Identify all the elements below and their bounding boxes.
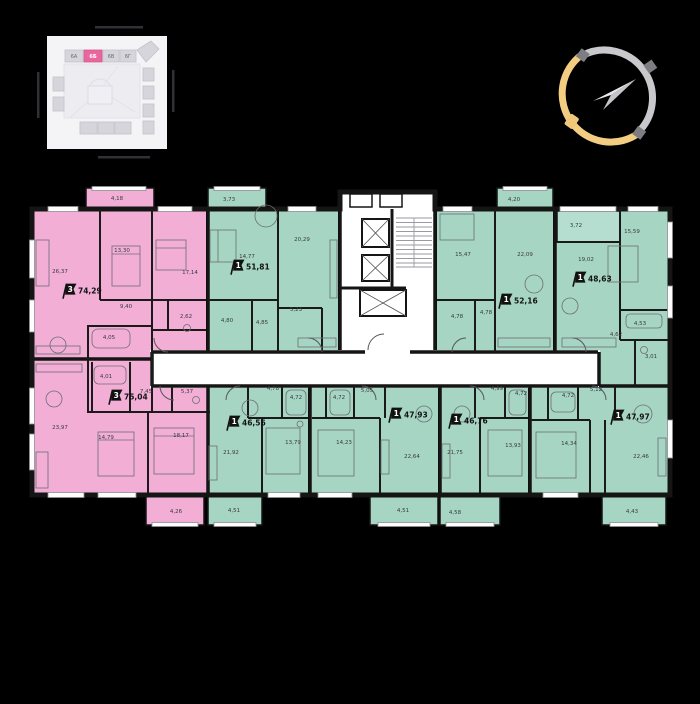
- apartment-total-area: 52,16: [514, 297, 538, 306]
- apartment-label-75-04[interactable]: 375,04: [108, 389, 148, 406]
- apartment-label-74-29[interactable]: 374,29: [62, 283, 102, 300]
- room-count-flag-icon: 1: [610, 409, 625, 426]
- street-label-placeholder: [172, 70, 175, 112]
- building-plan: [30, 187, 673, 527]
- room-count-flag-icon: 1: [572, 271, 587, 288]
- apartment-label-47-97[interactable]: 147,97: [610, 409, 650, 426]
- svg-text:3: 3: [114, 391, 119, 400]
- room-count-flag-icon: 3: [62, 283, 77, 300]
- apartment-label-47-93[interactable]: 147,93: [388, 407, 428, 424]
- apartment-total-area: 51,81: [246, 263, 270, 272]
- map-building[interactable]: [53, 77, 64, 91]
- vent-shaft: [380, 194, 402, 207]
- map-building[interactable]: [80, 122, 97, 134]
- apartment-region-47-93[interactable]: [310, 386, 438, 493]
- map-building[interactable]: [143, 86, 154, 99]
- map-building-label-highlighted: 6Б: [89, 54, 96, 60]
- apartment-region-51-81[interactable]: [208, 211, 338, 352]
- floorplan-page: 6А 6Б 6В 6Г: [0, 0, 700, 700]
- apartment-total-area: 74,29: [78, 287, 102, 296]
- apartment-total-area: 46,56: [242, 419, 266, 428]
- courtyard-building: [88, 86, 112, 104]
- street-label-placeholder: [37, 72, 40, 118]
- apartment-total-area: 47,97: [626, 413, 650, 422]
- map-building-label: 6В: [108, 54, 115, 60]
- apartment-total-area: 48,63: [588, 275, 612, 284]
- svg-text:1: 1: [394, 409, 399, 418]
- apartment-total-area: 46,76: [464, 417, 488, 426]
- room-count-flag-icon: 1: [388, 407, 403, 424]
- map-building[interactable]: [98, 122, 114, 134]
- apartment-label-51-81[interactable]: 151,81: [230, 259, 270, 276]
- apartment-label-52-16[interactable]: 152,16: [498, 293, 538, 310]
- map-building[interactable]: [143, 68, 154, 81]
- apartment-region-46-76[interactable]: [440, 386, 528, 493]
- map-building[interactable]: [143, 104, 154, 117]
- site-map: 6А 6Б 6В 6Г: [37, 26, 175, 159]
- apartment-label-48-63[interactable]: 148,63: [572, 271, 612, 288]
- room-count-flag-icon: 1: [230, 259, 245, 276]
- svg-text:1: 1: [504, 295, 509, 304]
- map-building[interactable]: [53, 97, 64, 111]
- map-building-label: 6А: [71, 54, 78, 60]
- vent-shaft: [350, 194, 372, 207]
- apartment-region-46-56[interactable]: [208, 386, 308, 493]
- svg-text:3: 3: [68, 285, 73, 294]
- svg-text:1: 1: [236, 261, 241, 270]
- street-label-placeholder: [95, 26, 143, 29]
- floor-plan-drawing: 6А 6Б 6В 6Г: [0, 0, 700, 700]
- svg-text:1: 1: [454, 415, 459, 424]
- apartment-total-area: 75,04: [124, 393, 148, 402]
- svg-text:1: 1: [232, 417, 237, 426]
- room-count-flag-icon: 3: [108, 389, 123, 406]
- svg-text:1: 1: [616, 411, 621, 420]
- compass-icon: [562, 48, 657, 142]
- apartment-total-area: 47,93: [404, 411, 428, 420]
- svg-text:1: 1: [578, 273, 583, 282]
- room-count-flag-icon: 1: [448, 413, 463, 430]
- corridor: [150, 350, 600, 388]
- map-building-label: 6Г: [125, 54, 131, 60]
- room-count-flag-icon: 1: [498, 293, 513, 310]
- apartment-label-46-76[interactable]: 146,76: [448, 413, 488, 430]
- apartment-label-46-56[interactable]: 146,56: [226, 415, 266, 432]
- street-label-placeholder: [98, 156, 150, 159]
- map-building[interactable]: [143, 121, 154, 134]
- map-building[interactable]: [115, 122, 131, 134]
- room-count-flag-icon: 1: [226, 415, 241, 432]
